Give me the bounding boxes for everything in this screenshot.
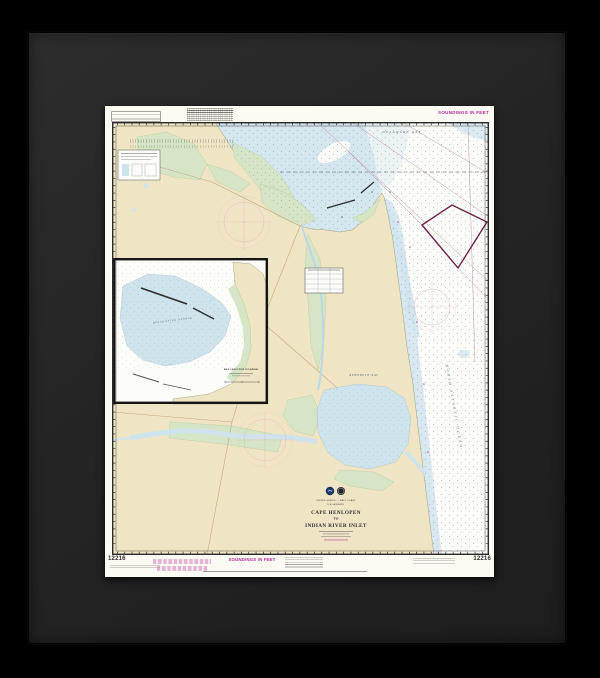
breakwater-harbor-inset: BREAKWATER HARBOR BREAKWATER HARBOR (113, 258, 268, 404)
title-line1: CAPE HENLOPEN (311, 510, 361, 516)
chart-number-bottom-left: 12216 (108, 556, 126, 562)
chart-notes-fineprint (187, 108, 233, 121)
soundings-units-top: SOUNDINGS IN FEET (438, 110, 489, 115)
tidal-information-table (305, 268, 343, 293)
projection-fineprint (285, 557, 323, 568)
land-table-box (118, 150, 160, 180)
edition-note-box (111, 111, 161, 122)
delaware-bay-label: DELAWARE BAY (381, 130, 421, 134)
chart-number-bottom-right: 12216 (467, 556, 491, 562)
title-line2: TO (334, 517, 339, 521)
inset-title: BREAKWATER HARBOR (224, 368, 259, 371)
bottom-caption-line (203, 571, 367, 572)
nautical-map: DELAWARE BAY REHOBOTH BAY NORTH ATLANTIC… (112, 122, 489, 555)
corrections-fineprint (413, 558, 455, 564)
soundings-units-bottom: SOUNDINGS IN FEET (222, 557, 282, 562)
commerce-seal-logo (326, 487, 334, 495)
product-photo: SOUNDINGS IN FEET (0, 0, 600, 678)
agent-stamp (153, 558, 211, 574)
rehoboth-bay-label: REHOBOTH BAY (348, 374, 378, 377)
title-nation: UNITED STATES — EAST COAST (316, 499, 356, 502)
title-state: DELAWARE (328, 503, 345, 506)
map-area: DELAWARE BAY REHOBOTH BAY NORTH ATLANTIC… (112, 122, 489, 555)
title-line3: INDIAN RIVER INLET (305, 523, 367, 529)
noaa-logo (337, 487, 345, 495)
chart-paper: SOUNDINGS IN FEET (105, 106, 494, 577)
